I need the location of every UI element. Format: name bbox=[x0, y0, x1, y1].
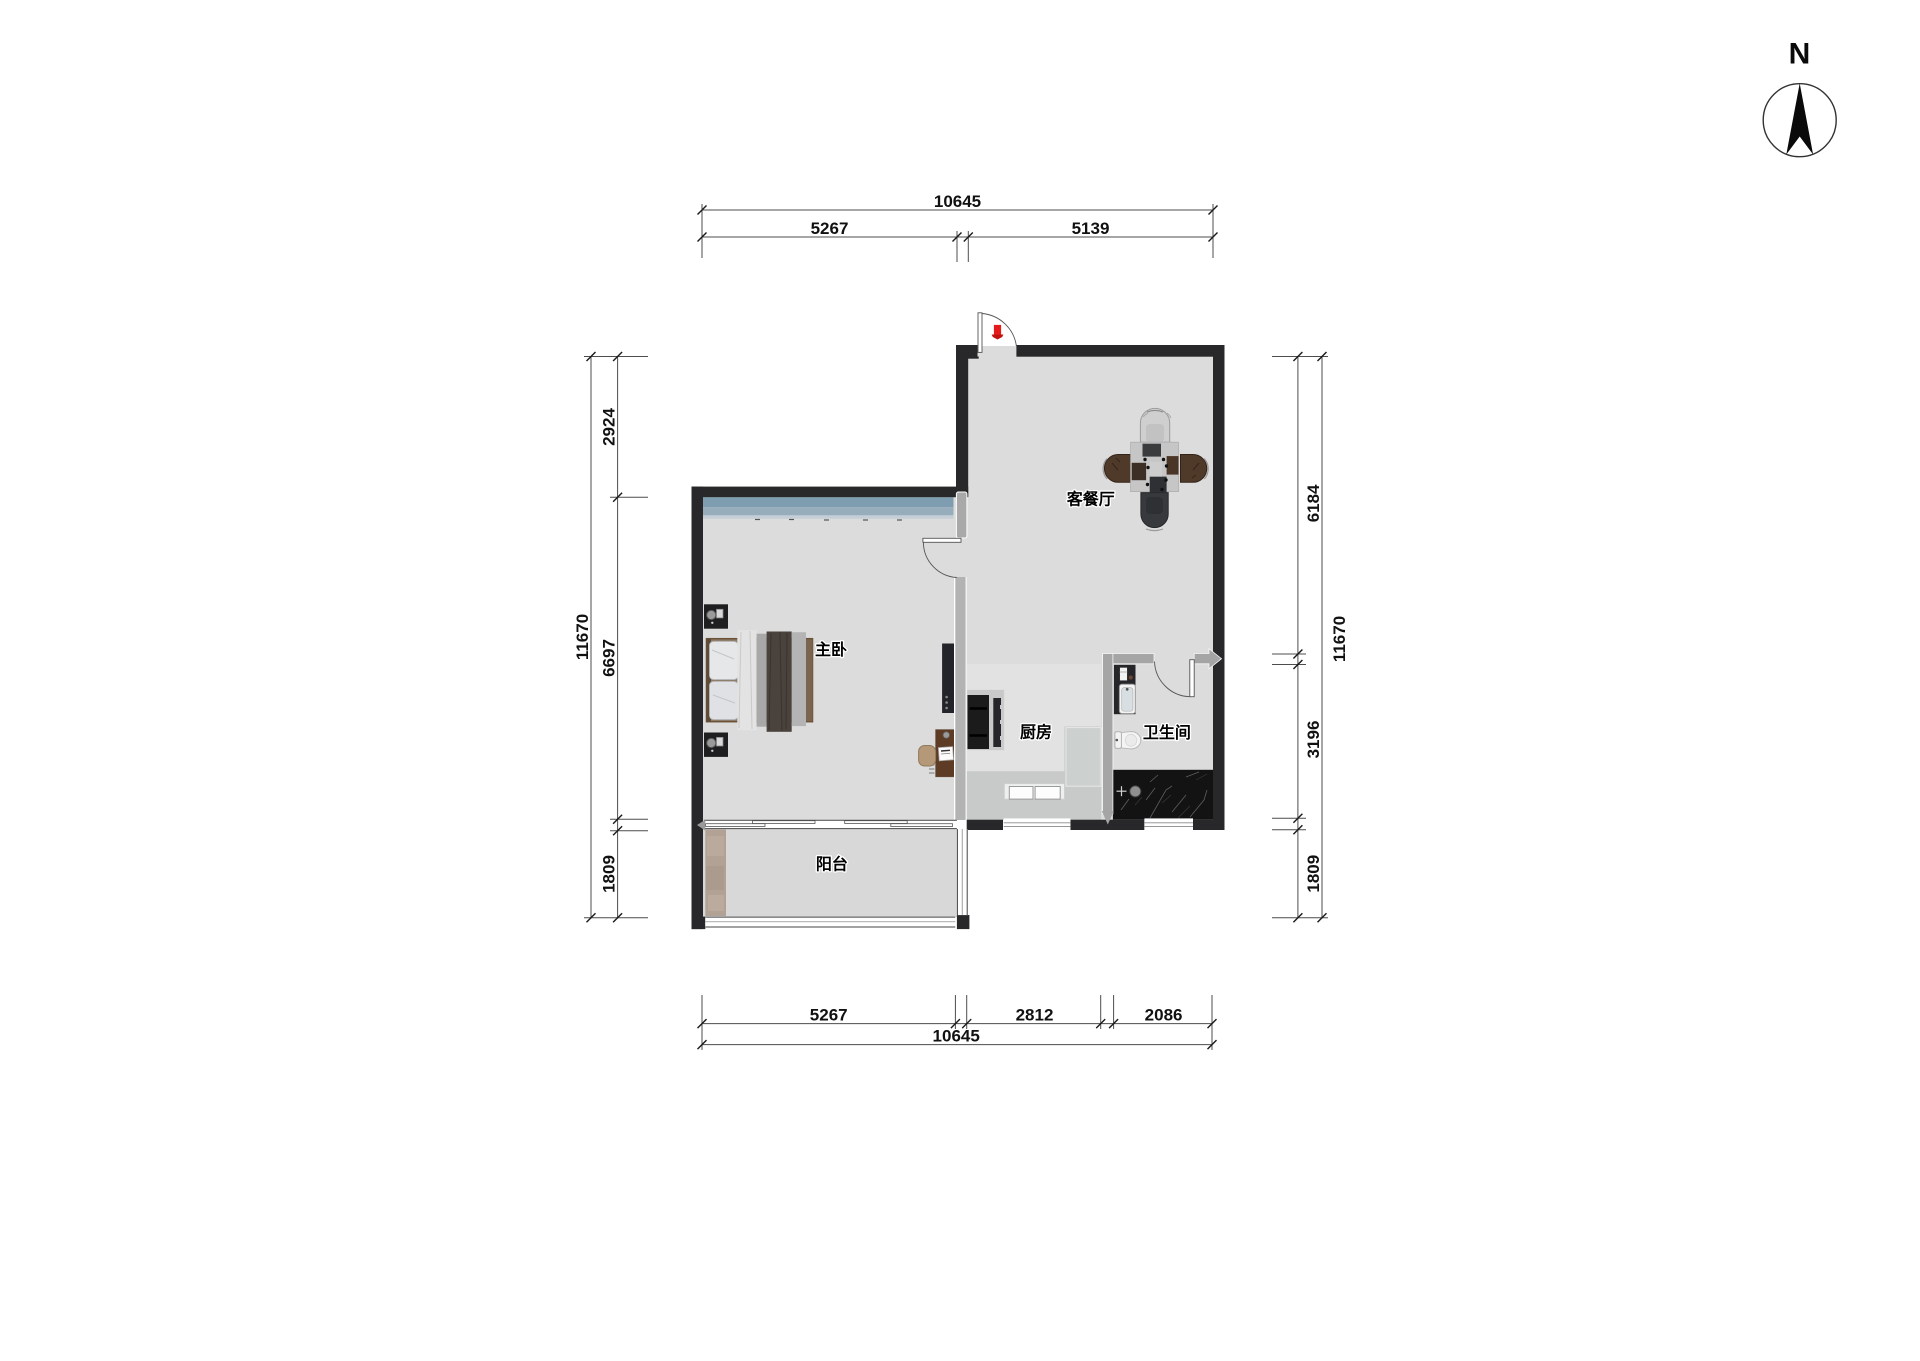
svg-text:1809: 1809 bbox=[1304, 855, 1323, 893]
svg-text:2812: 2812 bbox=[1016, 1006, 1054, 1025]
svg-text:客餐厅: 客餐厅 bbox=[1067, 490, 1115, 509]
svg-text:2086: 2086 bbox=[1145, 1006, 1183, 1025]
svg-text:主卧: 主卧 bbox=[815, 640, 847, 659]
svg-text:5267: 5267 bbox=[811, 219, 849, 238]
svg-text:厨房: 厨房 bbox=[1020, 723, 1052, 742]
svg-text:5139: 5139 bbox=[1072, 219, 1110, 238]
svg-text:1809: 1809 bbox=[600, 855, 619, 893]
svg-text:6697: 6697 bbox=[600, 639, 619, 677]
svg-text:阳台: 阳台 bbox=[816, 855, 848, 874]
svg-text:11670: 11670 bbox=[1330, 616, 1349, 662]
svg-text:10645: 10645 bbox=[934, 192, 981, 211]
svg-text:6184: 6184 bbox=[1304, 484, 1323, 522]
svg-text:2924: 2924 bbox=[600, 408, 619, 446]
svg-text:10645: 10645 bbox=[933, 1027, 980, 1046]
svg-text:5267: 5267 bbox=[810, 1006, 848, 1025]
svg-text:11670: 11670 bbox=[573, 614, 592, 660]
svg-text:卫生间: 卫生间 bbox=[1143, 723, 1191, 742]
svg-text:3196: 3196 bbox=[1304, 721, 1323, 759]
svg-text:N: N bbox=[1789, 38, 1811, 71]
